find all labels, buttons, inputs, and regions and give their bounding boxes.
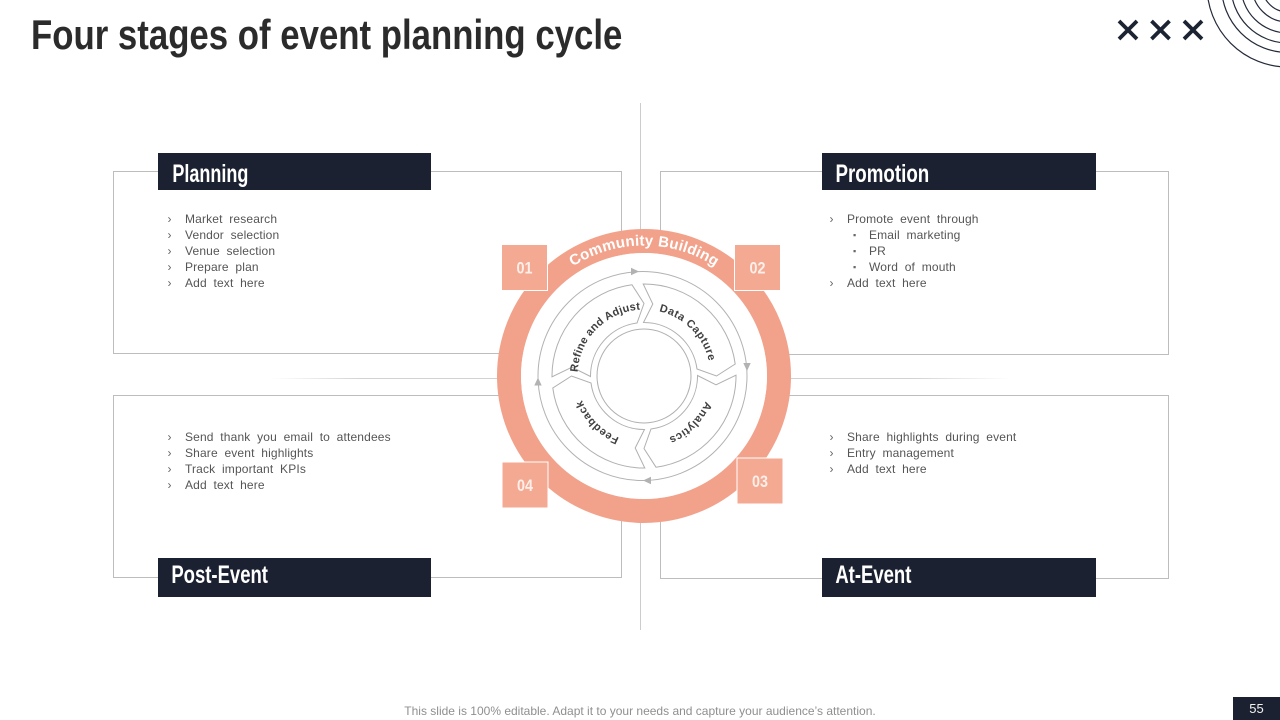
svg-text:02: 02 [750,260,766,278]
svg-text:01: 01 [517,260,533,278]
svg-text:03: 03 [752,473,768,491]
svg-text:04: 04 [517,477,533,495]
